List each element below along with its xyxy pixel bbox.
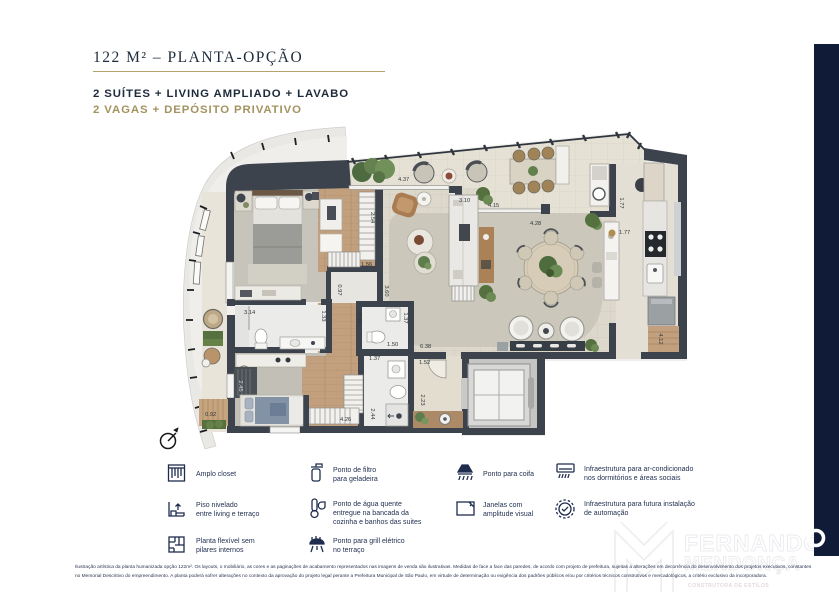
- svg-text:4.12: 4.12: [657, 333, 663, 344]
- svg-text:cozinha e banhos das suites: cozinha e banhos das suites: [333, 519, 422, 526]
- svg-text:6.38: 6.38: [420, 344, 431, 350]
- svg-text:3.60: 3.60: [383, 285, 389, 296]
- svg-text:Infraestrutura para ar-condici: Infraestrutura para ar-condicionado: [584, 466, 693, 473]
- svg-text:1.56: 1.56: [361, 262, 372, 268]
- svg-text:Piso nivelado: Piso nivelado: [196, 502, 238, 509]
- svg-text:1.77: 1.77: [619, 230, 630, 236]
- svg-text:2.44: 2.44: [369, 408, 375, 420]
- svg-text:4.15: 4.15: [488, 203, 499, 209]
- svg-text:2.45: 2.45: [237, 380, 243, 391]
- svg-text:3.94: 3.94: [356, 312, 362, 324]
- svg-text:Ponto para coifa: Ponto para coifa: [483, 471, 534, 478]
- svg-text:3.14: 3.14: [244, 310, 256, 316]
- svg-text:1.52: 1.52: [419, 360, 430, 366]
- svg-text:Ilustração artística da planta: Ilustração artística da planta humanizad…: [75, 564, 812, 570]
- svg-text:1.37: 1.37: [402, 312, 408, 323]
- svg-text:2.54: 2.54: [369, 212, 375, 224]
- svg-text:amplitude visual: amplitude visual: [483, 511, 534, 518]
- svg-text:0.97: 0.97: [336, 284, 342, 295]
- svg-text:2 SUÍTES + LIVING AMPLIADO + L: 2 SUÍTES + LIVING AMPLIADO + LAVABO: [93, 87, 349, 100]
- svg-text:1.33: 1.33: [320, 310, 326, 321]
- svg-text:pilares internos: pilares internos: [196, 547, 244, 554]
- svg-text:1.37: 1.37: [369, 356, 380, 362]
- svg-text:entregue na bancada da: entregue na bancada da: [333, 510, 409, 517]
- svg-text:CONSTRUTORA DE ESTÍLOS: CONSTRUTORA DE ESTÍLOS: [688, 581, 769, 589]
- svg-text:no terraço: no terraço: [333, 547, 365, 554]
- svg-text:nos dormitórios e áreas sociai: nos dormitórios e áreas sociais: [584, 475, 681, 482]
- svg-text:Janelas com: Janelas com: [483, 502, 522, 509]
- svg-text:4.26: 4.26: [340, 417, 351, 423]
- svg-text:1.50: 1.50: [387, 342, 398, 348]
- svg-text:para geladeira: para geladeira: [333, 476, 378, 483]
- svg-text:Amplo closet: Amplo closet: [196, 471, 236, 478]
- svg-text:Ponto para grill elétrico: Ponto para grill elétrico: [333, 538, 405, 545]
- svg-text:FERNANDO: FERNANDO: [684, 530, 822, 556]
- svg-text:4.28: 4.28: [530, 221, 541, 227]
- svg-text:no Memorial Descritivo do empr: no Memorial Descritivo do empreendimento…: [75, 573, 767, 579]
- svg-text:2 VAGAS + DEPÓSITO PRIVATIVO: 2 VAGAS + DEPÓSITO PRIVATIVO: [93, 103, 302, 116]
- svg-text:0.92: 0.92: [205, 412, 216, 418]
- svg-text:Infraestrutura para futura ins: Infraestrutura para futura instalação: [584, 501, 695, 508]
- svg-text:de automação: de automação: [584, 510, 628, 517]
- svg-text:3.10: 3.10: [459, 198, 470, 204]
- svg-text:4.37: 4.37: [398, 177, 409, 183]
- svg-text:entre living e terraço: entre living e terraço: [196, 511, 260, 518]
- svg-text:1.77: 1.77: [618, 197, 624, 208]
- svg-text:2.23: 2.23: [419, 394, 425, 405]
- svg-text:Ponto de água quente: Ponto de água quente: [333, 501, 402, 508]
- svg-text:122 M² – PLANTA-OPÇÃO: 122 M² – PLANTA-OPÇÃO: [93, 49, 303, 66]
- svg-text:Ponto de filtro: Ponto de filtro: [333, 467, 376, 474]
- svg-text:Planta flexível sem: Planta flexível sem: [196, 538, 255, 545]
